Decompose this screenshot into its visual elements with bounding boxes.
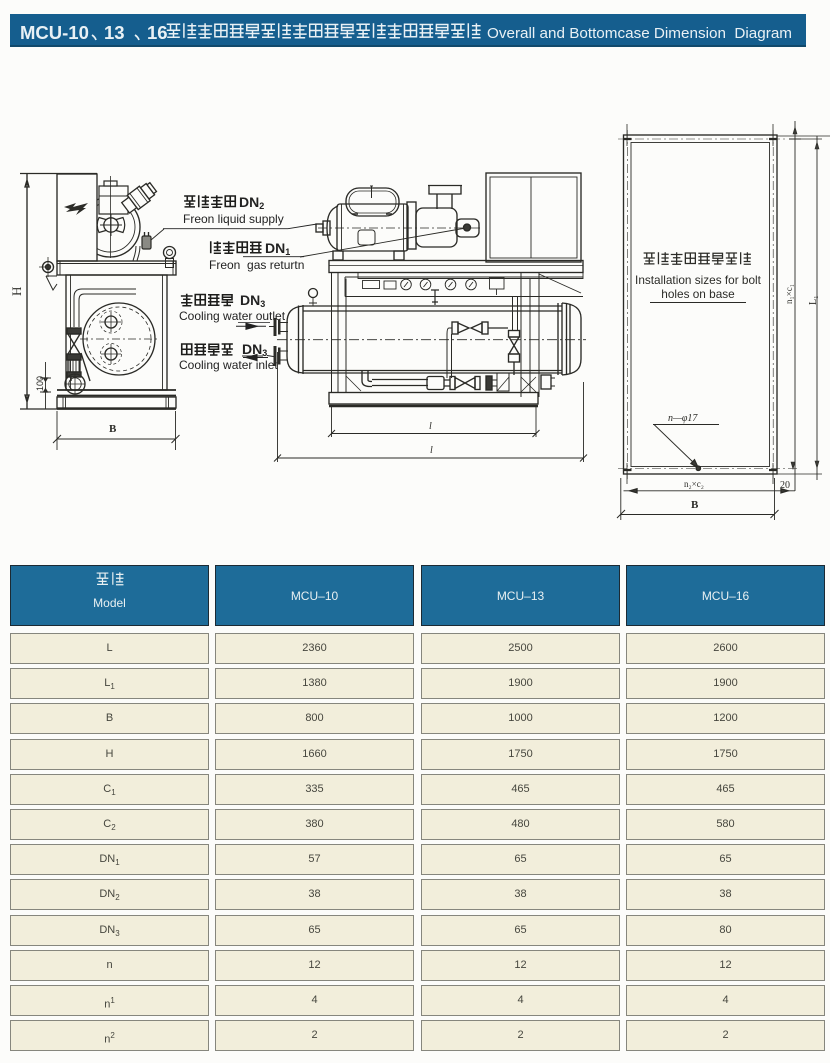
svg-text:B: B	[109, 423, 117, 435]
svg-text:l: l	[429, 421, 432, 432]
svg-text:13: 13	[104, 22, 125, 43]
svg-text:100: 100	[35, 376, 45, 391]
svg-text:L₁: L₁	[808, 295, 819, 305]
svg-text:Cooling water outlet: Cooling water outlet	[179, 309, 286, 323]
svg-text:Cooling water inlet: Cooling water inlet	[179, 358, 278, 372]
svg-text:20: 20	[780, 480, 790, 491]
svg-text:n—φ17: n—φ17	[668, 413, 698, 424]
svg-text:16: 16	[147, 22, 168, 43]
svg-text:Installation sizes for bolt: Installation sizes for bolt	[635, 273, 762, 287]
svg-text:B: B	[691, 499, 699, 511]
svg-text:n₂×c₂: n₂×c₂	[684, 479, 704, 489]
svg-text:l: l	[430, 445, 433, 456]
svg-text:DN1: DN1	[265, 240, 290, 257]
svg-text:Freon gas returtn: Freon gas returtn	[209, 258, 304, 272]
svg-text:Freon liquid supply: Freon liquid supply	[183, 212, 284, 226]
svg-text:holes on base: holes on base	[661, 287, 735, 301]
svg-text:n₁×c₁: n₁×c₁	[784, 284, 794, 304]
svg-text:MCU-10: MCU-10	[20, 22, 89, 43]
svg-text:DN2: DN2	[239, 194, 264, 211]
svg-text:H: H	[9, 287, 24, 296]
svg-text:DN3: DN3	[240, 292, 265, 309]
svg-text:Overall and Bottomcase Dimensi: Overall and Bottomcase Dimension Diagram	[487, 25, 792, 42]
